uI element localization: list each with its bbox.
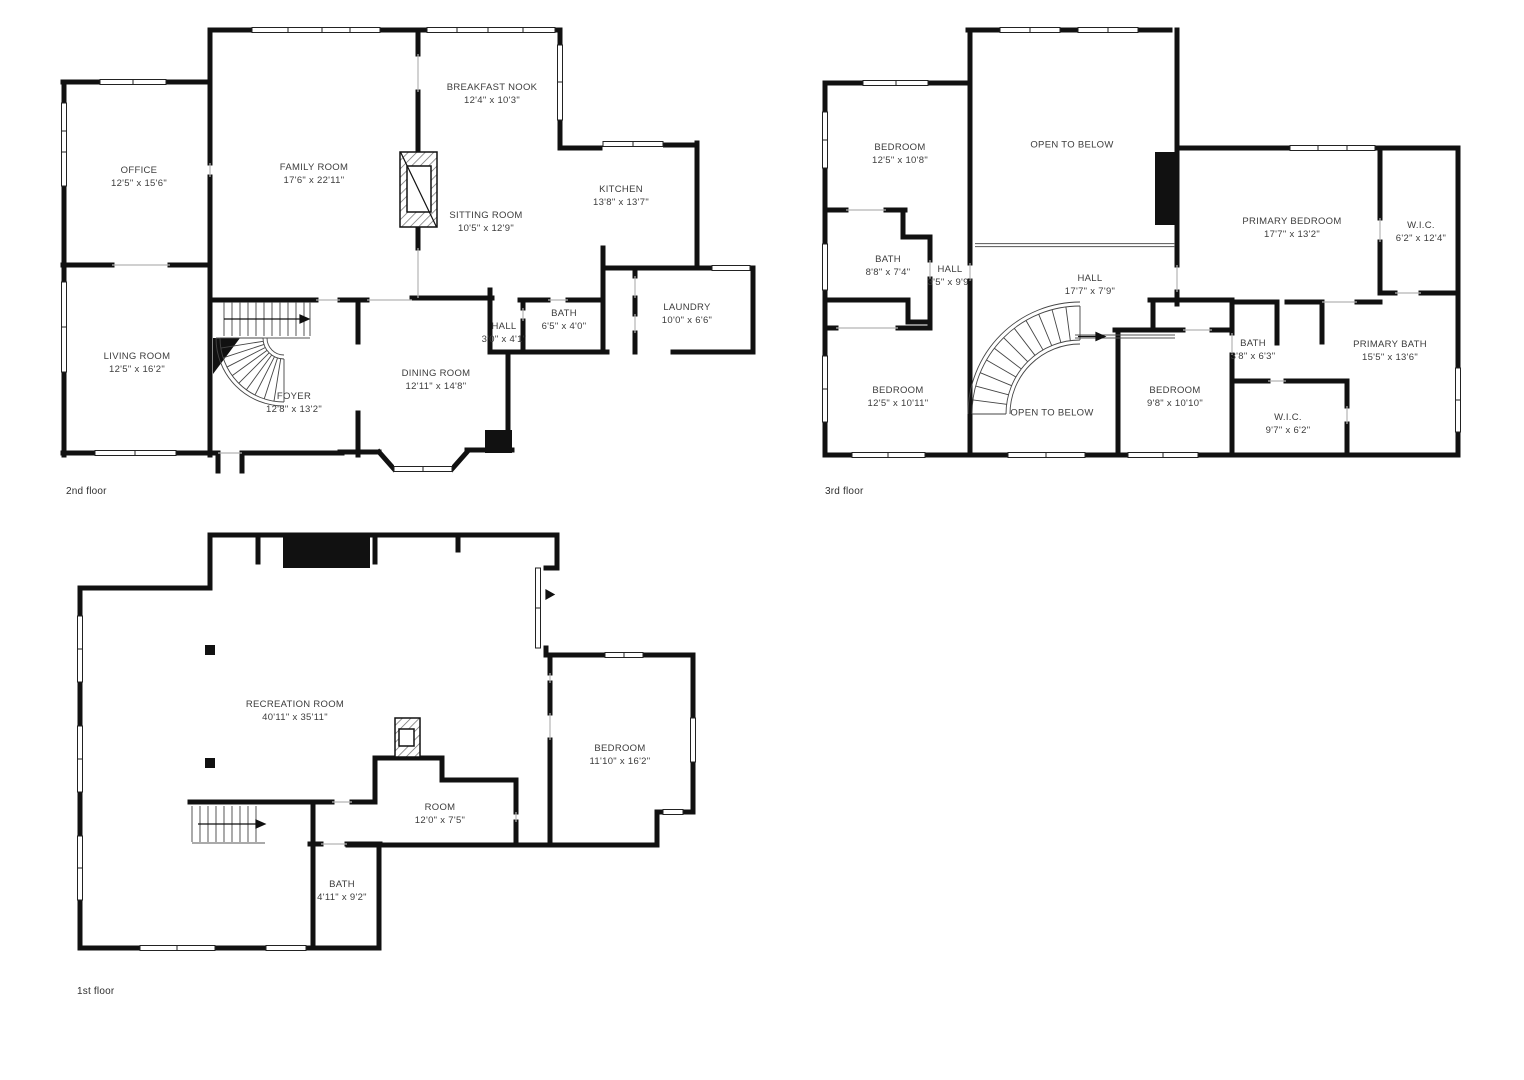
- floor-caption-1st: 1st floor: [77, 986, 114, 997]
- room-label: BATH4'11" x 9'2": [317, 878, 367, 904]
- room-name: SITTING ROOM: [449, 209, 522, 222]
- room-dims: 12'11" x 14'8": [402, 380, 471, 393]
- room-label: W.I.C.9'7" x 6'2": [1266, 411, 1311, 437]
- room-dims: 12'5" x 10'11": [868, 397, 929, 410]
- room-name: LAUNDRY: [662, 301, 712, 314]
- room-label: OFFICE12'5" x 15'6": [111, 164, 167, 190]
- room-label: SITTING ROOM10'5" x 12'9": [449, 209, 522, 235]
- room-label: BEDROOM12'5" x 10'8": [872, 141, 928, 167]
- room-name: BEDROOM: [872, 141, 928, 154]
- room-dims: 17'7" x 13'2": [1242, 228, 1341, 241]
- room-name: ROOM: [415, 801, 465, 814]
- room-name: BATH: [542, 307, 587, 320]
- room-label: BATH3'8" x 6'3": [1231, 337, 1276, 363]
- room-dims: 12'5" x 15'6": [111, 177, 167, 190]
- room-label: DINING ROOM12'11" x 14'8": [402, 367, 471, 393]
- room-name: BATH: [866, 253, 911, 266]
- room-dims: 12'5" x 10'8": [872, 154, 928, 167]
- room-name: OPEN TO BELOW: [1030, 139, 1113, 152]
- room-label: BATH8'8" x 7'4": [866, 253, 911, 279]
- room-label: ROOM12'0" x 7'5": [415, 801, 465, 827]
- room-name: DINING ROOM: [402, 367, 471, 380]
- room-dims: 9'7" x 6'2": [1266, 424, 1311, 437]
- room-label: HALL3'5" x 9'9": [928, 263, 973, 289]
- room-label: OPEN TO BELOW: [1030, 139, 1113, 152]
- room-dims: 17'7" x 7'9": [1065, 285, 1115, 298]
- room-label: BREAKFAST NOOK12'4" x 10'3": [447, 81, 538, 107]
- room-dims: 12'5" x 16'2": [104, 363, 171, 376]
- floorplan-drawing: [0, 0, 1524, 1080]
- room-label: LAUNDRY10'0" x 6'6": [662, 301, 712, 327]
- room-name: BEDROOM: [868, 384, 929, 397]
- room-dims: 6'5" x 4'0": [542, 320, 587, 333]
- room-name: PRIMARY BEDROOM: [1242, 215, 1341, 228]
- floor-caption-2nd: 2nd floor: [66, 486, 107, 497]
- room-label: FOYER12'8" x 13'2": [266, 390, 322, 416]
- room-name: BATH: [317, 878, 367, 891]
- room-dims: 12'4" x 10'3": [447, 94, 538, 107]
- room-dims: 3'8" x 6'3": [1231, 350, 1276, 363]
- room-dims: 10'5" x 12'9": [449, 222, 522, 235]
- room-label: RECREATION ROOM40'11" x 35'11": [246, 698, 344, 724]
- room-dims: 3'5" x 9'9": [928, 276, 973, 289]
- room-label: HALL3'0" x 4'1": [482, 320, 527, 346]
- room-label: LIVING ROOM12'5" x 16'2": [104, 350, 171, 376]
- room-label: W.I.C.6'2" x 12'4": [1396, 219, 1446, 245]
- room-dims: 10'0" x 6'6": [662, 314, 712, 327]
- room-name: OPEN TO BELOW: [1010, 407, 1093, 420]
- room-dims: 6'2" x 12'4": [1396, 232, 1446, 245]
- room-name: W.I.C.: [1396, 219, 1446, 232]
- room-label: HALL17'7" x 7'9": [1065, 272, 1115, 298]
- room-name: W.I.C.: [1266, 411, 1311, 424]
- room-label: FAMILY ROOM17'6" x 22'11": [280, 161, 348, 187]
- room-label: PRIMARY BEDROOM17'7" x 13'2": [1242, 215, 1341, 241]
- room-dims: 3'0" x 4'1": [482, 333, 527, 346]
- room-name: FAMILY ROOM: [280, 161, 348, 174]
- room-label: KITCHEN13'8" x 13'7": [593, 183, 649, 209]
- room-dims: 40'11" x 35'11": [246, 711, 344, 724]
- room-name: BEDROOM: [590, 742, 651, 755]
- room-name: HALL: [482, 320, 527, 333]
- room-label: BEDROOM12'5" x 10'11": [868, 384, 929, 410]
- room-name: HALL: [1065, 272, 1115, 285]
- room-name: RECREATION ROOM: [246, 698, 344, 711]
- room-label: PRIMARY BATH15'5" x 13'6": [1353, 338, 1427, 364]
- room-label: BEDROOM11'10" x 16'2": [590, 742, 651, 768]
- room-name: FOYER: [266, 390, 322, 403]
- room-label: BEDROOM9'8" x 10'10": [1147, 384, 1203, 410]
- room-name: BATH: [1231, 337, 1276, 350]
- room-label: BATH6'5" x 4'0": [542, 307, 587, 333]
- floor-plan-2nd: [63, 30, 753, 471]
- room-label: OPEN TO BELOW: [1010, 407, 1093, 420]
- room-dims: 17'6" x 22'11": [280, 174, 348, 187]
- room-name: PRIMARY BATH: [1353, 338, 1427, 351]
- room-name: KITCHEN: [593, 183, 649, 196]
- room-dims: 13'8" x 13'7": [593, 196, 649, 209]
- windows-and-stairs: [61, 27, 1462, 952]
- room-dims: 15'5" x 13'6": [1353, 351, 1427, 364]
- room-name: HALL: [928, 263, 973, 276]
- room-dims: 12'8" x 13'2": [266, 403, 322, 416]
- room-dims: 9'8" x 10'10": [1147, 397, 1203, 410]
- floor-caption-3rd: 3rd floor: [825, 486, 864, 497]
- room-name: OFFICE: [111, 164, 167, 177]
- room-dims: 4'11" x 9'2": [317, 891, 367, 904]
- room-dims: 12'0" x 7'5": [415, 814, 465, 827]
- floorplan-canvas: 2nd floor 3rd floor 1st floor OFFICE12'5…: [0, 0, 1524, 1080]
- room-name: BREAKFAST NOOK: [447, 81, 538, 94]
- room-dims: 8'8" x 7'4": [866, 266, 911, 279]
- room-name: BEDROOM: [1147, 384, 1203, 397]
- room-name: LIVING ROOM: [104, 350, 171, 363]
- room-dims: 11'10" x 16'2": [590, 755, 651, 768]
